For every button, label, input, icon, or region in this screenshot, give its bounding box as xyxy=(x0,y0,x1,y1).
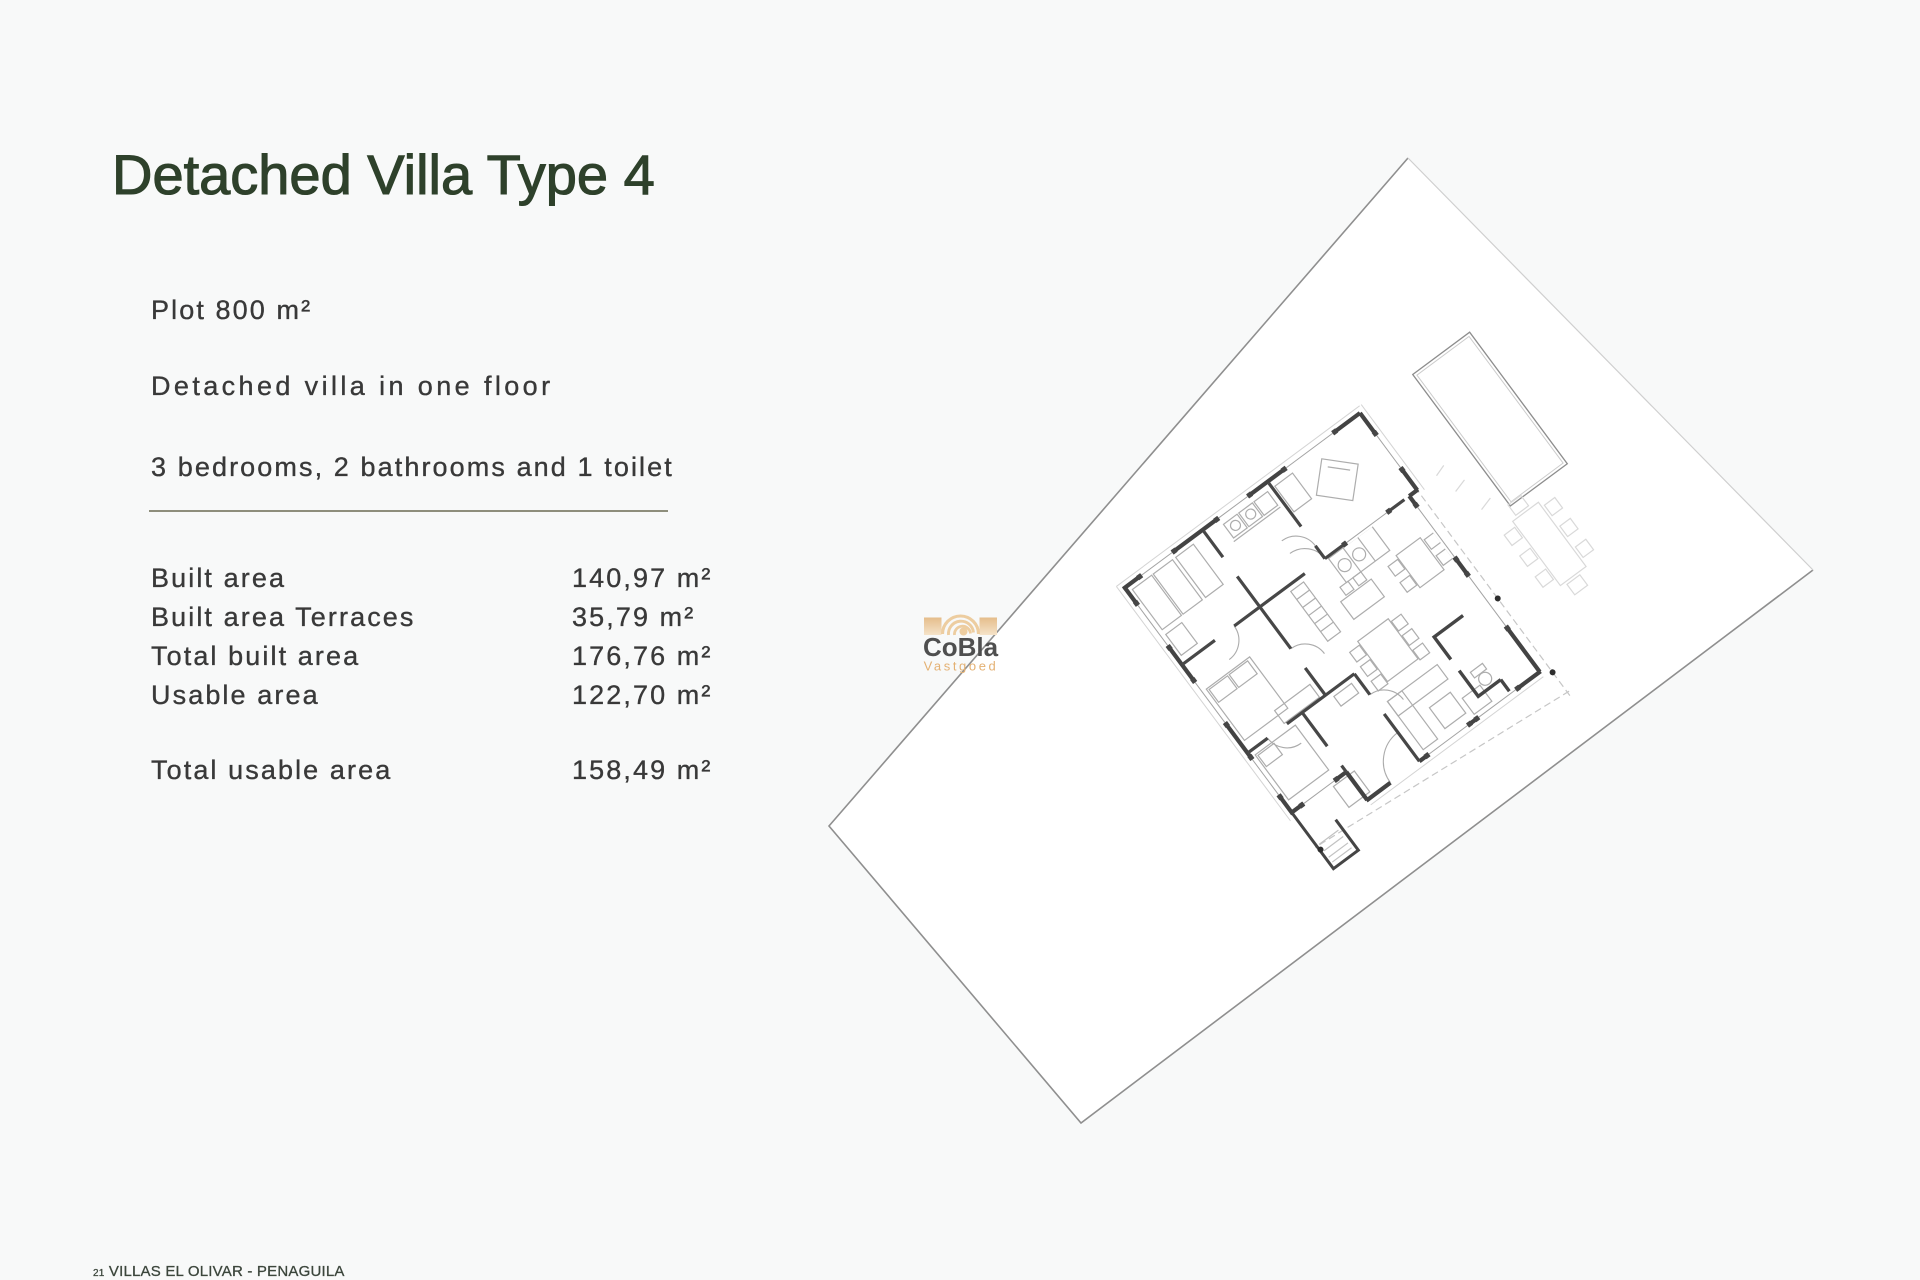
svg-text:Vastgoed: Vastgoed xyxy=(924,659,999,674)
svg-text:CoBla: CoBla xyxy=(923,632,999,662)
